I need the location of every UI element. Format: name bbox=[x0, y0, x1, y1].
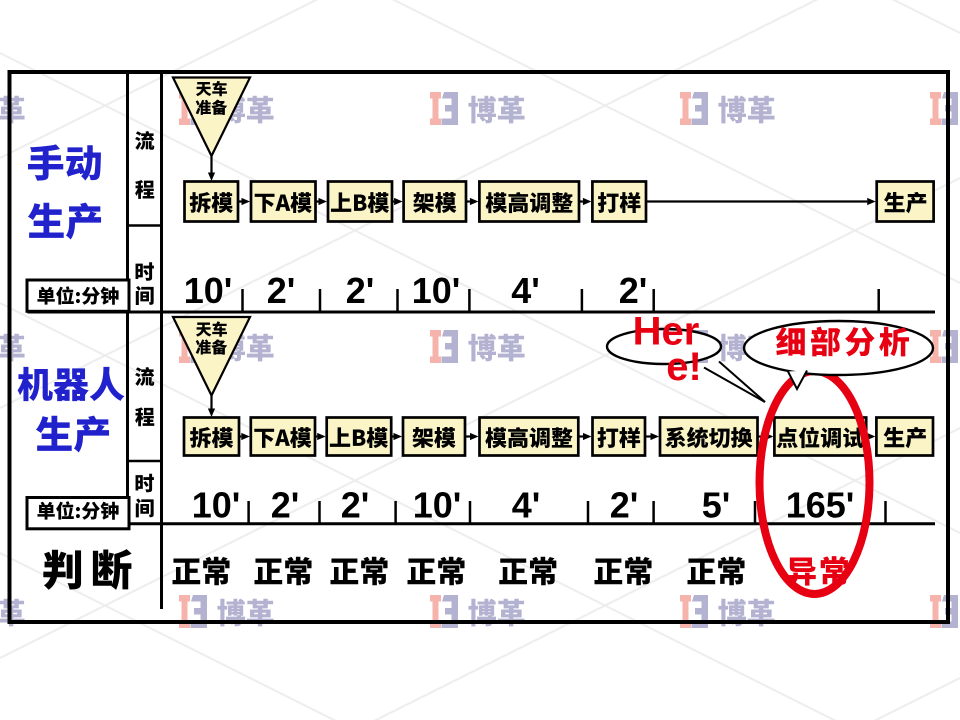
svg-text:2': 2' bbox=[619, 270, 648, 311]
svg-text:4': 4' bbox=[511, 270, 540, 311]
svg-text:e!: e! bbox=[666, 345, 702, 389]
svg-text:10': 10' bbox=[412, 270, 461, 311]
svg-text:165': 165' bbox=[786, 484, 855, 525]
svg-text:2': 2' bbox=[271, 484, 300, 525]
svg-text:10': 10' bbox=[192, 484, 241, 525]
svg-text:10': 10' bbox=[413, 484, 462, 525]
svg-text:2': 2' bbox=[341, 484, 370, 525]
svg-text:10': 10' bbox=[184, 270, 233, 311]
svg-text:2': 2' bbox=[267, 270, 296, 311]
svg-text:4': 4' bbox=[512, 484, 541, 525]
svg-text:5': 5' bbox=[702, 484, 731, 525]
svg-text:2': 2' bbox=[610, 484, 639, 525]
svg-text:2': 2' bbox=[346, 270, 375, 311]
